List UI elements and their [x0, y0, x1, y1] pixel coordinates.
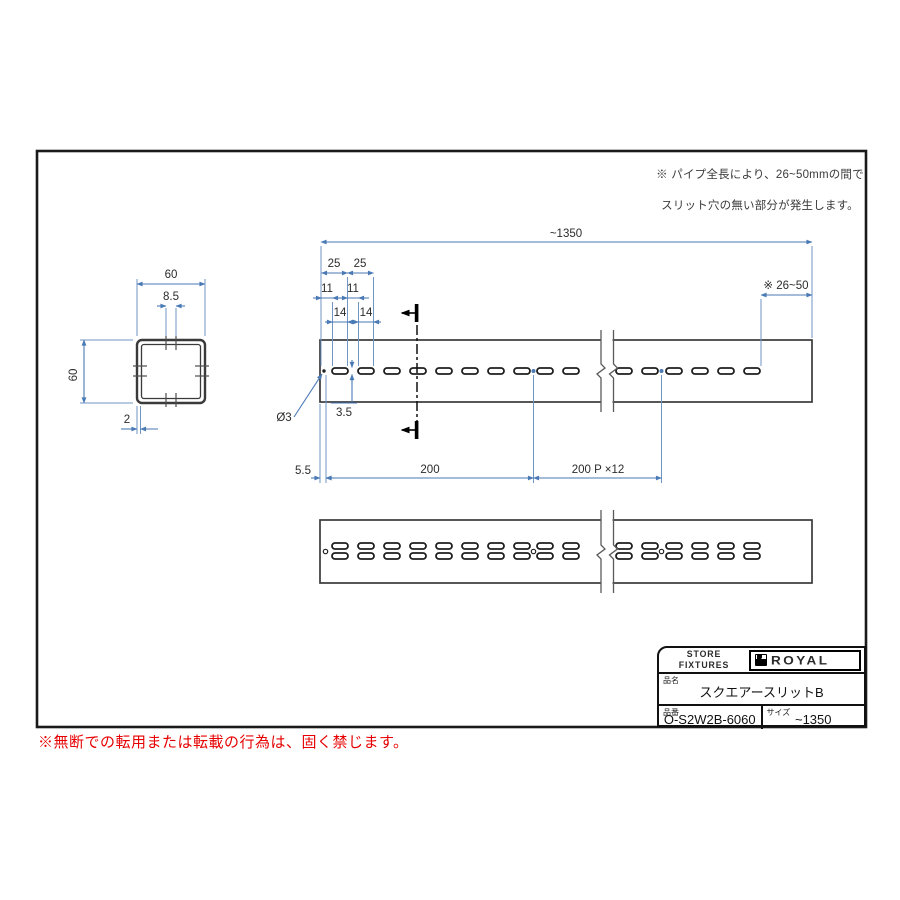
slit-hole: [744, 368, 760, 374]
dim-hole-dia: Ø3: [276, 412, 291, 424]
part-number-cell: 品番 O-S2W2B-6060: [659, 706, 761, 729]
ref-dot-1: [532, 369, 536, 373]
dim-end-blank: ※ 26~50: [763, 280, 808, 292]
round-hole: [531, 549, 535, 553]
dim-first-pitch: 200: [420, 464, 439, 476]
face-view: [320, 510, 812, 593]
slit-hole: [436, 553, 452, 559]
slit-hole: [488, 553, 504, 559]
slit-hole: [537, 543, 553, 549]
cross-section-view: [133, 336, 209, 407]
side-view-extension-lines: [320, 246, 812, 483]
sheet-border: [37, 151, 866, 727]
part-number-value: O-S2W2B-6060: [659, 712, 761, 727]
drawing-sheet: 60 8.5 60 2: [0, 0, 900, 900]
slit-hole: [642, 368, 658, 374]
dim-slot-length-1: 14: [334, 307, 347, 319]
slit-hole: [332, 368, 348, 374]
dim-gap-1: 11: [321, 283, 333, 295]
side-view-dimension-lines: [294, 242, 812, 478]
slit-hole: [384, 368, 400, 374]
section-flag-top: [402, 304, 418, 322]
slit-hole: [718, 368, 734, 374]
cross-section-dimensions: [80, 279, 205, 434]
store-fixtures-label: STORE FIXTURES: [663, 649, 746, 671]
slit-hole: [462, 368, 478, 374]
slit-hole: [410, 543, 426, 549]
slit-hole: [666, 553, 682, 559]
slit-hole: [488, 543, 504, 549]
slit-hole: [332, 553, 348, 559]
slit-hole: [537, 368, 553, 374]
slit-hole: [744, 543, 760, 549]
slit-hole: [488, 368, 504, 374]
slit-hole: [616, 368, 632, 374]
slit-hole: [718, 543, 734, 549]
dim-pitch-1: 25: [328, 258, 341, 270]
side-view-labels: ~1350 25 25 11 11 14 14 ※ 26~50 Ø3 3.5 5…: [276, 228, 808, 477]
slit-hole: [563, 543, 579, 549]
ref-dot-2: [660, 369, 664, 373]
slit-hole: [358, 543, 374, 549]
slit-hole: [692, 543, 708, 549]
dim-slit-width: 8.5: [163, 291, 179, 303]
copyright-warning: ※無断での転用または転載の行為は、固く禁じます。: [38, 731, 409, 752]
note-line-2: スリット穴の無い部分が発生します。: [652, 191, 868, 222]
slit-hole: [384, 543, 400, 549]
slit-hole: [537, 553, 553, 559]
slit-hole: [563, 368, 579, 374]
dim-section-height: 60: [68, 369, 80, 382]
dim-pitch-series: 200 P ×12: [572, 464, 625, 476]
dim-section-width: 60: [165, 269, 178, 281]
note-line-1: ※ パイプ全長により、26~50mmの間で: [652, 160, 868, 191]
slit-hole: [384, 553, 400, 559]
slit-hole: [514, 543, 530, 549]
slit-hole: [462, 543, 478, 549]
slit-hole: [692, 553, 708, 559]
slit-hole: [436, 368, 452, 374]
slit-hole: [410, 553, 426, 559]
size-cell: サイズ ~1350: [761, 706, 865, 729]
slit-hole: [358, 368, 374, 374]
slit-hole: [563, 553, 579, 559]
dim-pitch-2: 25: [354, 258, 367, 270]
note-text: ※ パイプ全長により、26~50mmの間で スリット穴の無い部分が発生します。: [652, 160, 868, 222]
slit-hole: [332, 543, 348, 549]
side-view: [320, 304, 812, 439]
slit-hole: [462, 553, 478, 559]
slit-hole: [410, 368, 426, 374]
slit-hole: [436, 543, 452, 549]
technical-drawing-canvas: 60 8.5 60 2: [0, 0, 900, 900]
slit-hole: [642, 543, 658, 549]
double-slot-rows: [332, 543, 760, 559]
title-block-header-row: STORE FIXTURES ROYAL: [659, 648, 864, 674]
slot-row: [332, 368, 760, 374]
slit-hole: [642, 553, 658, 559]
break-mask: [602, 514, 613, 589]
slit-hole: [514, 553, 530, 559]
dim-gap-2: 11: [347, 283, 359, 295]
product-name-row: 品名 スクエアースリットB: [659, 674, 864, 704]
slit-hole: [666, 543, 682, 549]
round-hole: [323, 549, 327, 553]
size-value: ~1350: [763, 712, 865, 727]
slit-hole: [692, 368, 708, 374]
slit-hole: [358, 553, 374, 559]
break-mask: [602, 334, 613, 408]
product-name-value: スクエアースリットB: [659, 682, 864, 701]
round-hole: [659, 549, 663, 553]
slit-hole: [744, 553, 760, 559]
dim-overall-length: ~1350: [550, 228, 582, 240]
royal-logo: ROYAL: [749, 650, 861, 671]
dim-slot-length-2: 14: [360, 307, 373, 319]
slit-hole: [514, 368, 530, 374]
slit-hole: [616, 543, 632, 549]
section-flag-bottom: [402, 421, 418, 439]
slit-hole: [666, 368, 682, 374]
dim-wall-thickness: 2: [124, 414, 130, 426]
slit-hole: [718, 553, 734, 559]
part-size-row: 品番 O-S2W2B-6060 サイズ ~1350: [659, 704, 864, 729]
royal-logo-text: ROYAL: [771, 653, 830, 667]
dim-end-offset: 5.5: [295, 465, 311, 477]
end-hole: [322, 369, 325, 372]
title-block: STORE FIXTURES ROYAL 品名 スクエアースリットB 品番 O-…: [657, 646, 866, 727]
royal-logo-icon: [755, 654, 767, 666]
slit-hole: [616, 553, 632, 559]
dim-slit-height: 3.5: [336, 407, 352, 419]
